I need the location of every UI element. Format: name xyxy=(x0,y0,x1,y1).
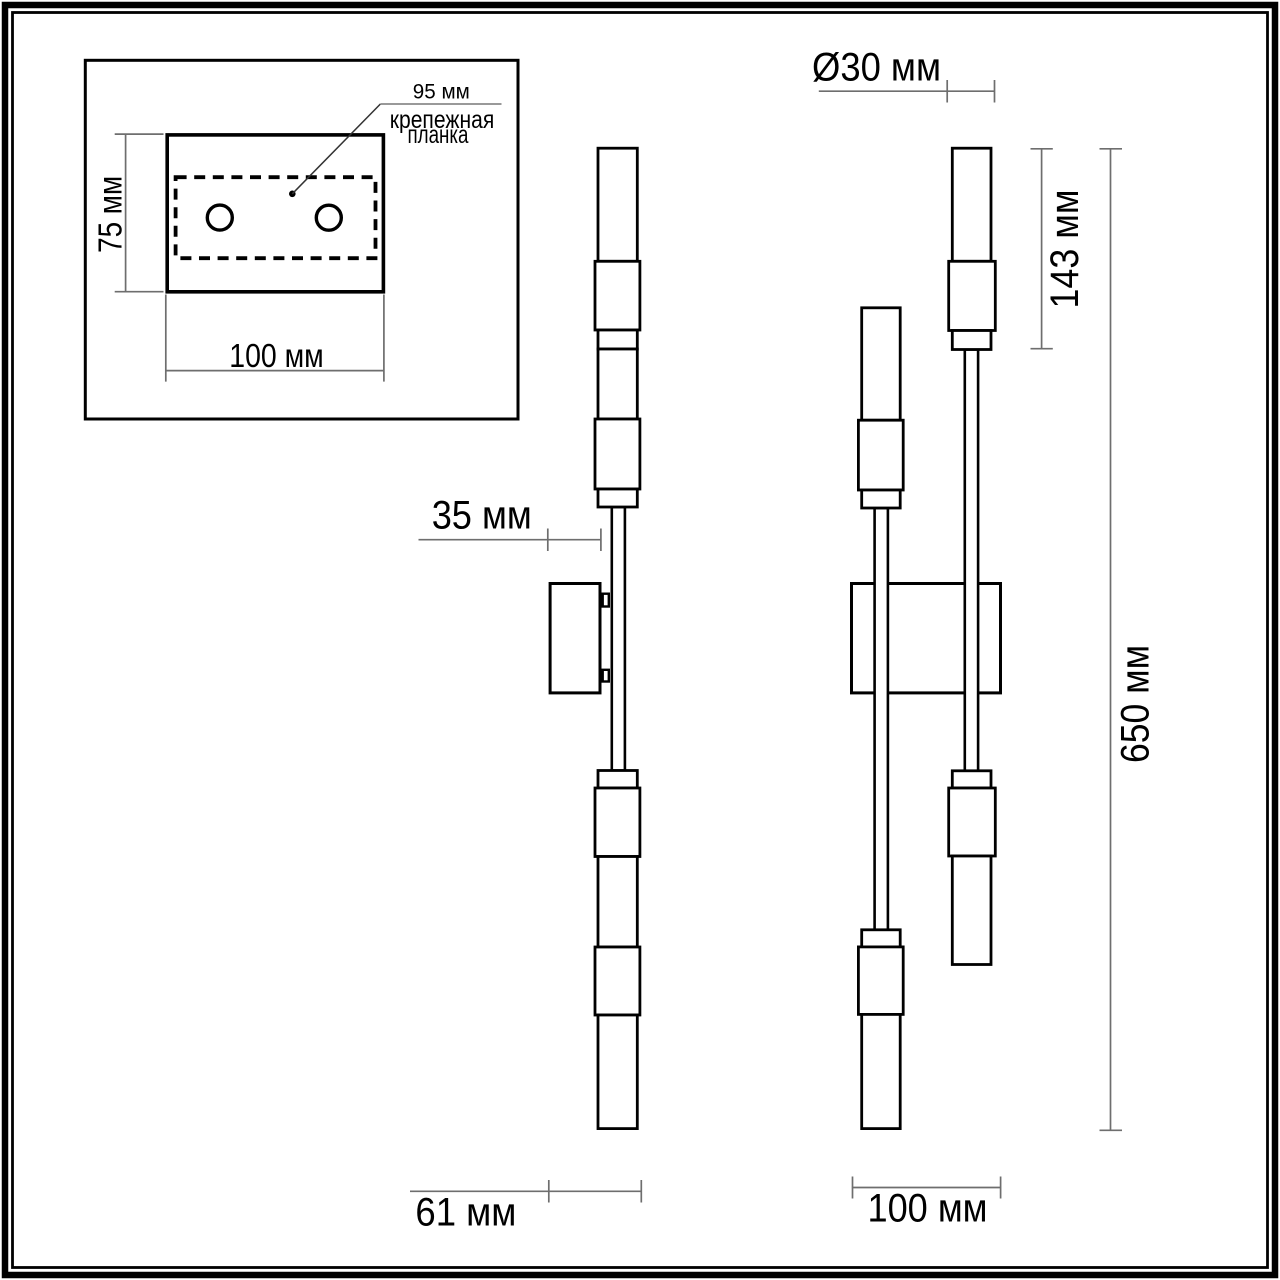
svg-text:61 мм: 61 мм xyxy=(415,1191,516,1235)
svg-text:100 мм: 100 мм xyxy=(229,337,324,374)
svg-text:650 мм: 650 мм xyxy=(1114,645,1158,763)
svg-text:100 мм: 100 мм xyxy=(868,1186,988,1230)
svg-text:35 мм: 35 мм xyxy=(432,494,532,538)
svg-text:Ø30 мм: Ø30 мм xyxy=(812,45,941,89)
svg-text:75 мм: 75 мм xyxy=(92,176,129,253)
svg-text:планка: планка xyxy=(408,121,469,149)
svg-text:143 мм: 143 мм xyxy=(1043,190,1087,309)
svg-text:95 мм: 95 мм xyxy=(413,81,470,104)
